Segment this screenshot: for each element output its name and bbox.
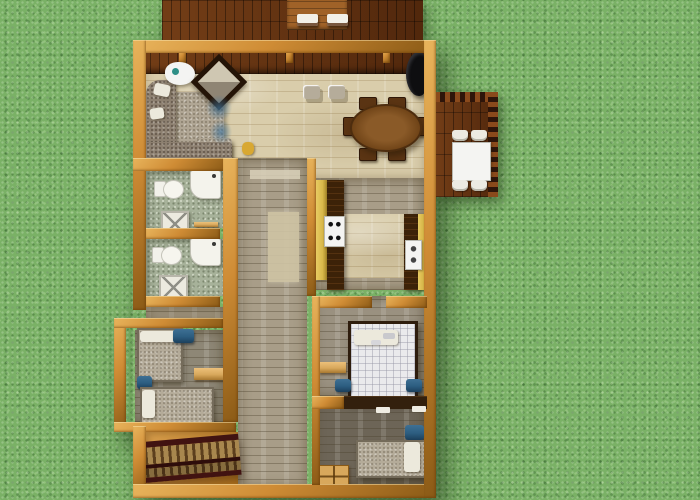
blue-pillow (335, 379, 351, 392)
patio-chair (452, 130, 468, 141)
toilet (163, 180, 184, 199)
bathroom-vanity (190, 170, 221, 199)
blue-pillow (406, 379, 422, 392)
top-deck (162, 0, 423, 43)
wall-hallway-left (223, 158, 238, 422)
patio-chair (471, 180, 487, 191)
wall-master-left (312, 296, 320, 485)
wall-master-top-b (386, 296, 427, 308)
kitchen-sink (405, 240, 422, 270)
hallway-runner-rug (268, 212, 299, 282)
bed-pillow (404, 442, 420, 472)
wall-exterior-left-upper (133, 40, 146, 310)
potted-plant (172, 68, 179, 75)
deck-bench-seat (297, 14, 318, 26)
staircase (138, 434, 241, 484)
bed-sheet-fold (383, 333, 395, 339)
patio-chair (452, 180, 468, 191)
wall-bedroom-divider-left (312, 396, 344, 409)
vanity-faucet (212, 174, 216, 178)
wall-exterior-top (133, 40, 436, 53)
toilet (161, 246, 182, 265)
blue-decor-blob (210, 120, 232, 144)
hallway-threshold (250, 170, 300, 179)
deck-bench-seat (327, 14, 348, 26)
bed-pillow (142, 390, 155, 418)
side-deck (435, 92, 498, 197)
wall-exterior-right (424, 40, 436, 498)
wall-bump-top (114, 318, 223, 328)
wall-hallway-right (307, 158, 316, 296)
ceiling-light-mark (412, 406, 426, 412)
wall-master-top-a (320, 296, 372, 308)
patio-table (452, 142, 491, 181)
blue-pillow (405, 425, 424, 440)
patio-chair (471, 130, 487, 141)
wall-bathroom-top (133, 158, 225, 171)
oval-dining-table (350, 104, 422, 152)
blue-nightstand (173, 329, 194, 343)
bathroom-wall-shelf (194, 222, 218, 227)
bed-pillow (140, 331, 176, 342)
cooktop (324, 216, 345, 247)
wall-exterior-bottom (133, 484, 436, 498)
hallway-floor (238, 158, 307, 488)
floor-plan-scene (0, 0, 700, 500)
wall-exterior-left-bump (114, 318, 126, 432)
blue-decor-blob (206, 95, 232, 121)
kitchen-floor-light-patch (344, 214, 404, 278)
wall-desk (194, 368, 223, 380)
wall-bathroom-divider (146, 228, 220, 239)
wall-bathroom-bottom (146, 296, 220, 307)
ceiling-light-mark (376, 407, 390, 413)
throw-pillow (149, 107, 164, 120)
master-wall-shelf (319, 362, 346, 373)
bed-sheet-fold (371, 340, 381, 345)
vanity-faucet (212, 242, 216, 246)
bar-stool (303, 85, 320, 99)
decor-item (242, 142, 254, 155)
bathroom-vanity (190, 238, 221, 266)
bar-stool (328, 85, 345, 99)
